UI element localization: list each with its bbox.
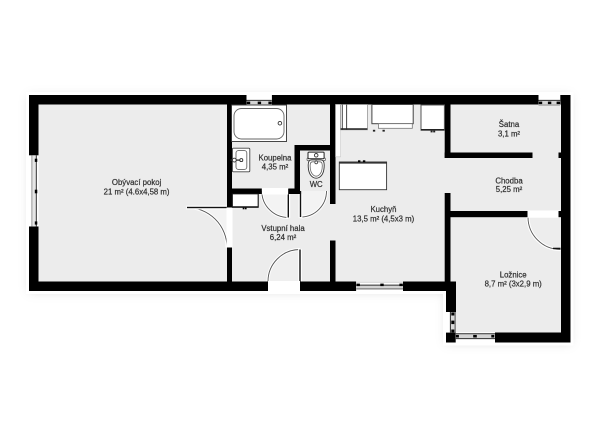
svg-text:3,1 m²: 3,1 m² <box>498 129 520 138</box>
svg-text:Ložnice: Ložnice <box>500 270 527 279</box>
svg-text:13,5 m² (4,5x3 m): 13,5 m² (4,5x3 m) <box>353 214 415 223</box>
svg-text:4,35 m²: 4,35 m² <box>262 162 289 171</box>
svg-text:Obývací pokoj: Obývací pokoj <box>112 178 162 187</box>
svg-text:6,24 m²: 6,24 m² <box>270 233 297 242</box>
svg-text:Šatna: Šatna <box>499 120 520 129</box>
svg-text:5,25 m²: 5,25 m² <box>496 185 523 194</box>
svg-text:Kuchyň: Kuchyň <box>370 205 396 214</box>
svg-text:Koupelna: Koupelna <box>259 154 293 163</box>
svg-text:Vstupní hala: Vstupní hala <box>261 224 305 233</box>
svg-text:21 m² (4.6x4,58 m): 21 m² (4.6x4,58 m) <box>104 187 170 196</box>
svg-text:8,7 m² (3x2,9 m): 8,7 m² (3x2,9 m) <box>485 280 543 289</box>
svg-text:WC: WC <box>310 180 323 189</box>
